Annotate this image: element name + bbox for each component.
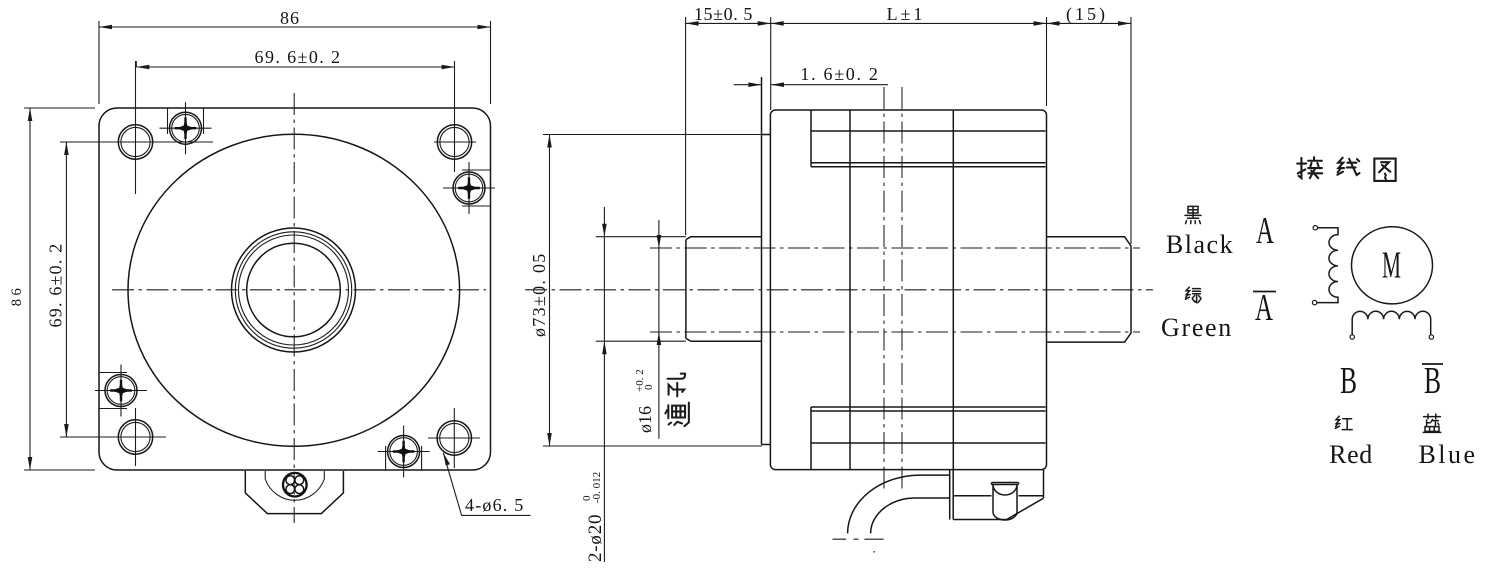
svg-text:(15): (15) (1066, 4, 1108, 25)
svg-text:B: B (1340, 360, 1357, 402)
svg-text:Black: Black (1166, 230, 1234, 259)
svg-text:Green: Green (1161, 313, 1233, 342)
svg-text:0: 0 (643, 384, 655, 390)
svg-text:86: 86 (280, 8, 300, 28)
svg-text:15±0. 5: 15±0. 5 (694, 4, 753, 24)
svg-text:ø16: ø16 (635, 406, 655, 433)
svg-text:69. 6±0. 2: 69. 6±0. 2 (46, 243, 66, 328)
svg-text:Red: Red (1329, 440, 1373, 469)
svg-text:A: A (1256, 210, 1274, 252)
svg-text:2-ø20: 2-ø20 (585, 514, 606, 562)
svg-text:69. 6±0. 2: 69. 6±0. 2 (255, 47, 342, 67)
svg-text:ø73±0. 05: ø73±0. 05 (529, 252, 549, 337)
svg-text:Blue: Blue (1418, 440, 1477, 469)
svg-text:M: M (1382, 245, 1401, 287)
svg-text:B: B (1424, 360, 1441, 402)
svg-text:A: A (1255, 287, 1273, 329)
svg-text:-0. 012: -0. 012 (591, 472, 603, 503)
svg-text:86: 86 (9, 285, 25, 307)
svg-text:L±1: L±1 (887, 4, 926, 24)
svg-text:4-ø6. 5: 4-ø6. 5 (465, 495, 524, 515)
svg-text:1. 6±0. 2: 1. 6±0. 2 (800, 64, 879, 84)
